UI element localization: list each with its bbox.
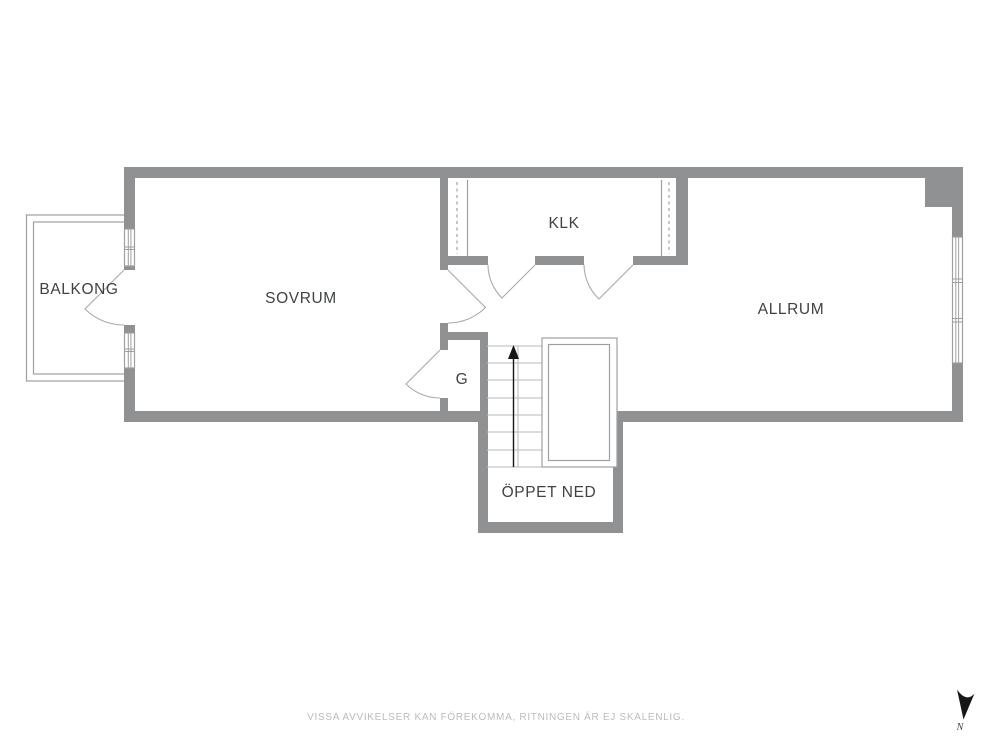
room-label-sovrum: SOVRUM [265,290,337,307]
room-label-klk: KLK [548,215,579,232]
room-label-allrum: ALLRUM [758,301,824,318]
wall-closet-right [480,332,488,411]
north-label: N [956,722,965,733]
closet-g-door-swing [406,350,440,398]
room-label-garderob: G [456,371,469,388]
bedroom-door-opening [439,270,449,323]
room-label-oppet-ned: ÖPPET NED [502,483,597,501]
stair-treads [487,346,542,467]
disclaimer-text: VISSA AVVIKELSER KAN FÖREKOMMA, RITNINGE… [307,711,685,723]
wall-stair-left [478,411,488,533]
wall-top [124,167,963,178]
closet-door-opening [439,350,449,398]
klk-right-door-opening [584,255,633,266]
room-label-balkong: BALKONG [39,281,118,298]
floor-plan-page: BALKONG SOVRUM KLK ALLRUM G ÖPPET NED VI… [0,0,992,744]
klk-left-door-swing [488,265,535,298]
klk-left-door-opening [488,255,535,266]
klk-right-door-swing [584,265,633,299]
north-arrow-icon [957,690,975,720]
stairwell-opening [542,338,617,467]
stairs [487,338,617,467]
bedroom-door-swing [448,270,486,323]
wall-corner-notch [925,178,963,207]
wall-bottom-right [623,411,963,422]
window-right [953,237,963,363]
floor-plan: BALKONG SOVRUM KLK ALLRUM G ÖPPET NED VI… [0,0,992,744]
wall-bottom-left [124,411,478,422]
window-left-bottom [125,333,135,368]
wall-stair-bottom [478,522,623,533]
window-left-top [125,229,135,266]
wall-klk-bottom [440,256,688,265]
compass: N [956,690,975,734]
wall-klk-right [676,178,688,265]
balcony-outline [27,215,126,381]
balcony-door-opening [123,270,136,325]
